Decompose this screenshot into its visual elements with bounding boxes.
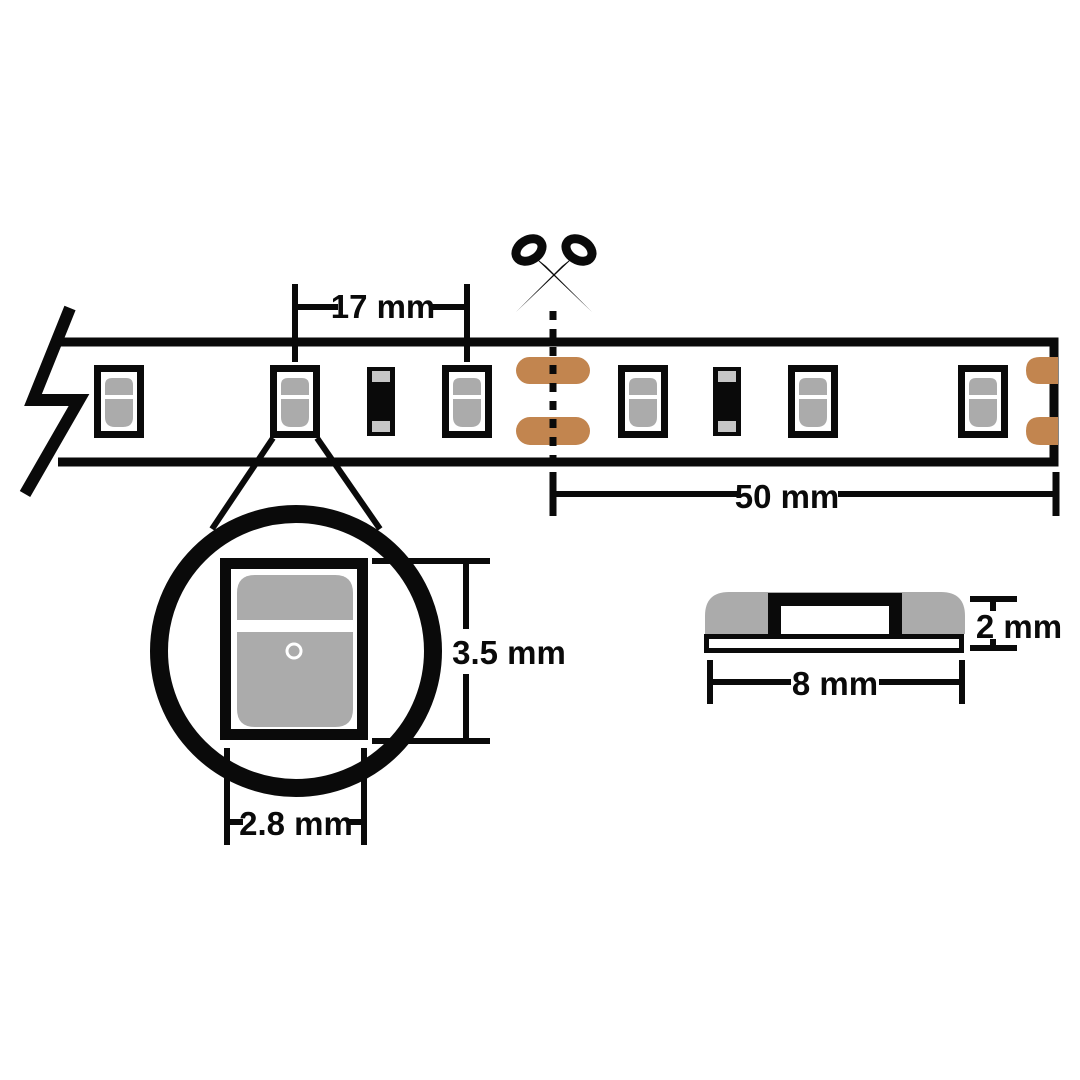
magnified-led-lens-top [237, 575, 353, 620]
magnified-led-lens-bottom [237, 632, 353, 727]
dim-17mm-label: 17 mm [331, 288, 436, 325]
dim-3_5mm-label: 3.5 mm [452, 634, 566, 671]
led-chip [94, 365, 144, 438]
led-chip [270, 365, 320, 438]
diagram-svg: 17 mm 50 mm 3.5 mm 2.8 mm [0, 0, 1080, 1080]
side-view-pcb [707, 637, 962, 651]
led-chip [788, 365, 838, 438]
dim-50mm-label: 50 mm [735, 478, 840, 515]
scissors-icon [512, 234, 596, 312]
end-pad-bottom [1026, 417, 1058, 445]
scissors-loop-left [512, 234, 546, 266]
dim-2mm-label: 2 mm [976, 608, 1062, 645]
end-pad-top [1026, 357, 1058, 384]
scissors-loop-right [562, 234, 596, 266]
dim-2_8mm-label: 2.8 mm [239, 805, 353, 842]
strip-side-view [705, 592, 965, 651]
resistor [713, 367, 741, 436]
resistor [367, 367, 395, 436]
dim-8mm-label: 8 mm [792, 665, 878, 702]
strip-top-view [25, 308, 1054, 494]
led-strip-diagram: 17 mm 50 mm 3.5 mm 2.8 mm [0, 0, 1080, 1080]
led-chip [618, 365, 668, 438]
led-chip [958, 365, 1008, 438]
magnified-led [226, 564, 363, 735]
led-chip [442, 365, 492, 438]
side-view-led-window [781, 606, 889, 634]
